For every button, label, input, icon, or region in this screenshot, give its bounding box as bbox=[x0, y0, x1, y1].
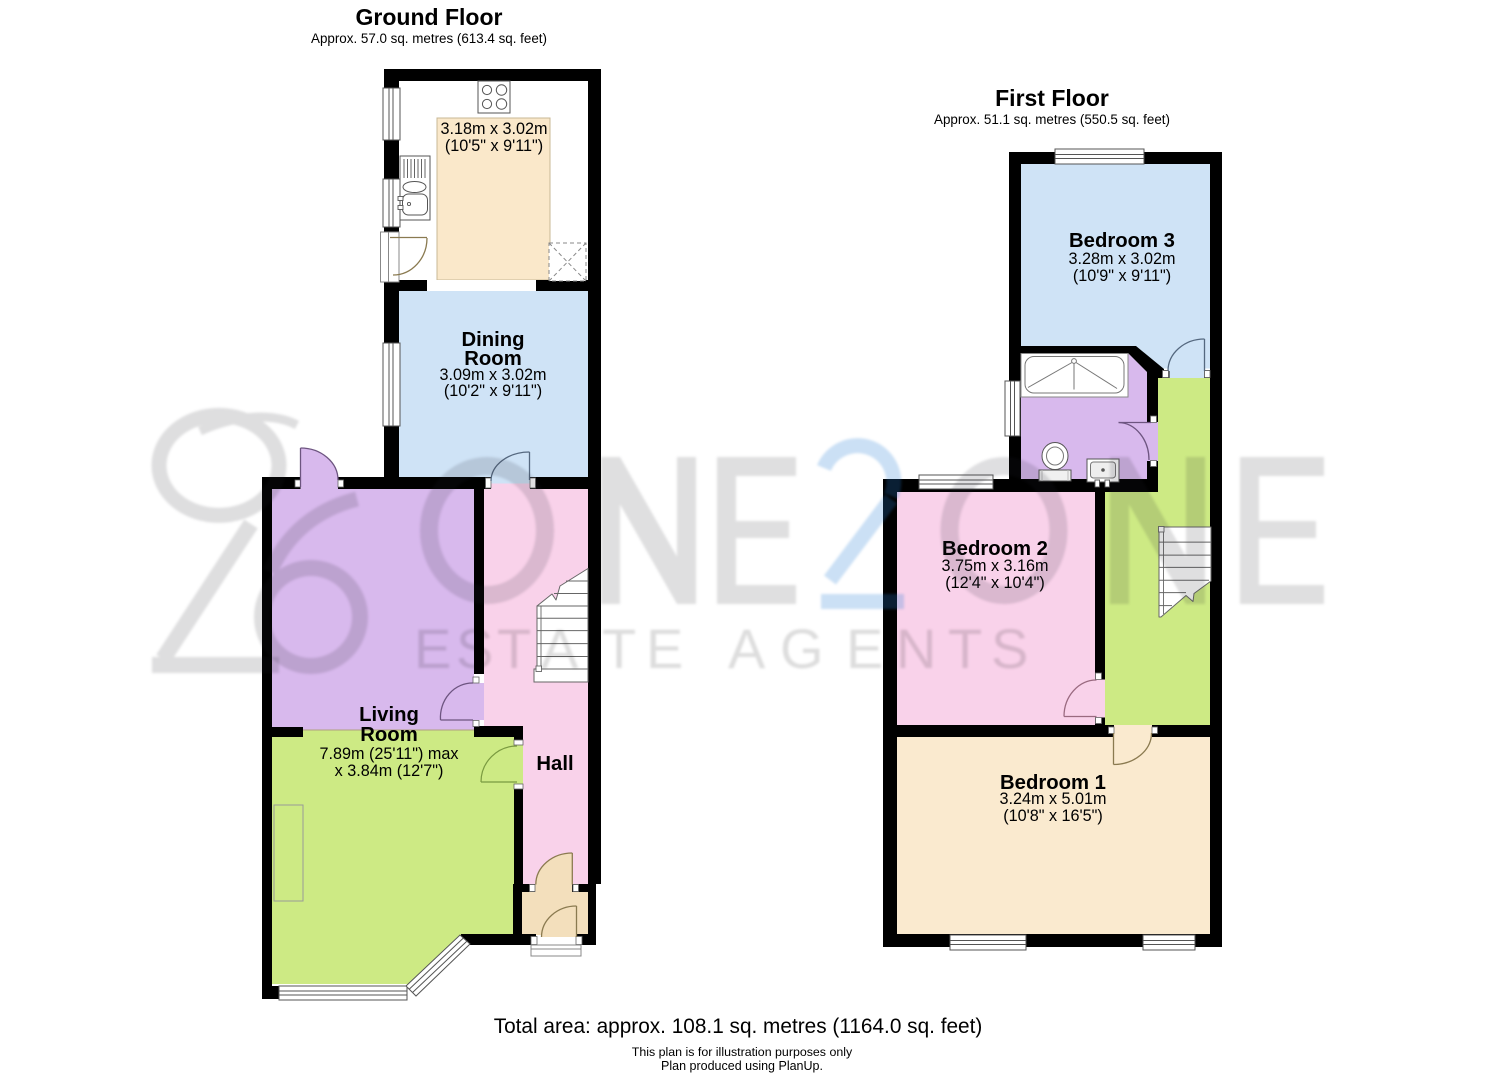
svg-text:Hall: Hall bbox=[536, 753, 573, 775]
svg-text:(10'9" x 9'11"): (10'9" x 9'11") bbox=[1073, 267, 1171, 285]
svg-text:G: G bbox=[780, 617, 824, 680]
svg-text:Room: Room bbox=[360, 724, 417, 746]
svg-text:S: S bbox=[456, 617, 493, 680]
svg-text:Plan produced using PlanUp.: Plan produced using PlanUp. bbox=[661, 1059, 823, 1073]
svg-text:3.18m x 3.02m: 3.18m x 3.02m bbox=[440, 120, 547, 138]
svg-text:E: E bbox=[646, 617, 683, 680]
svg-text:E: E bbox=[846, 617, 883, 680]
svg-text:T: T bbox=[602, 617, 636, 680]
svg-text:S: S bbox=[991, 617, 1028, 680]
svg-text:A: A bbox=[541, 617, 579, 680]
svg-text:x 3.84m (12'7"): x 3.84m (12'7") bbox=[335, 762, 444, 780]
svg-text:Total area: approx. 108.1 sq.: Total area: approx. 108.1 sq. metres (11… bbox=[494, 1015, 983, 1038]
svg-text:A: A bbox=[728, 617, 766, 680]
svg-text:This plan is for illustration: This plan is for illustration purposes o… bbox=[632, 1045, 853, 1059]
svg-text:T: T bbox=[948, 617, 982, 680]
svg-text:3.28m x 3.02m: 3.28m x 3.02m bbox=[1068, 250, 1175, 268]
svg-text:E: E bbox=[414, 617, 451, 680]
svg-text:3.24m x 5.01m: 3.24m x 5.01m bbox=[999, 790, 1106, 808]
svg-text:(10'8" x 16'5"): (10'8" x 16'5") bbox=[1003, 807, 1103, 825]
svg-text:Approx. 51.1 sq. metres (550.5: Approx. 51.1 sq. metres (550.5 sq. feet) bbox=[934, 112, 1170, 127]
svg-text:(10'2" x 9'11"): (10'2" x 9'11") bbox=[444, 382, 542, 400]
svg-text:Approx. 57.0 sq. metres (613.4: Approx. 57.0 sq. metres (613.4 sq. feet) bbox=[311, 31, 547, 46]
svg-text:N: N bbox=[896, 617, 936, 680]
svg-text:(10'5" x 9'11"): (10'5" x 9'11") bbox=[445, 137, 543, 155]
svg-text:T: T bbox=[497, 617, 531, 680]
svg-text:Living: Living bbox=[359, 704, 419, 726]
svg-text:7.89m (25'11") max: 7.89m (25'11") max bbox=[320, 745, 459, 763]
svg-text:Bedroom 3: Bedroom 3 bbox=[1069, 230, 1175, 252]
svg-text:First Floor: First Floor bbox=[995, 85, 1109, 111]
svg-text:Ground Floor: Ground Floor bbox=[356, 4, 503, 30]
